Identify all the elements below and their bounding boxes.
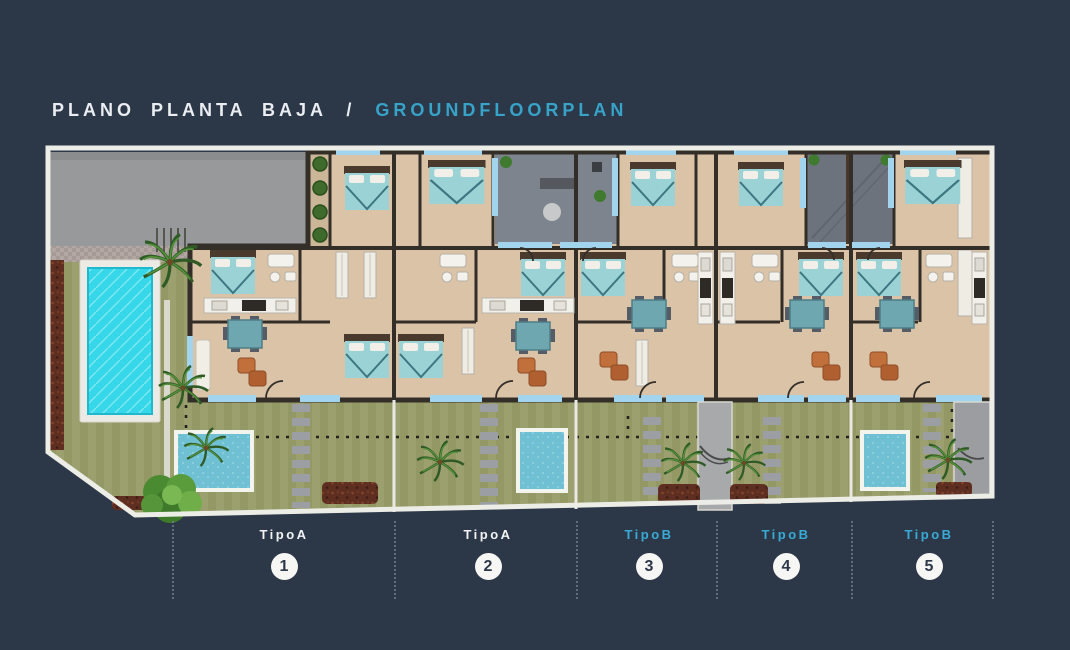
unit-number-badge: 3	[636, 553, 663, 580]
unit-label-2: TipoA 2	[428, 526, 548, 580]
unit-number-badge: 2	[475, 553, 502, 580]
label-separator	[394, 521, 396, 599]
label-separator	[576, 521, 578, 599]
page: PLANO PLANTA BAJA / GROUNDFLOORPLAN	[0, 0, 1070, 650]
unit-type-label: TipoA	[428, 526, 548, 544]
unit-type-label: TipoB	[726, 526, 846, 544]
unit-label-5: TipoB 5	[869, 526, 989, 580]
unit-number-badge: 1	[271, 553, 298, 580]
unit-label-1: TipoA 1	[224, 526, 344, 580]
unit-label-3: TipoB 3	[589, 526, 709, 580]
plunge-pool-2	[518, 430, 566, 491]
entry-courtyard-1	[495, 152, 618, 244]
communal-pool	[80, 260, 160, 422]
label-separator	[716, 521, 718, 599]
unit-type-label: TipoA	[224, 526, 344, 544]
building	[187, 149, 992, 402]
unit-type-label: TipoB	[589, 526, 709, 544]
unit-number-badge: 5	[916, 553, 943, 580]
unit-label-4: TipoB 4	[726, 526, 846, 580]
label-separator	[992, 521, 994, 599]
plunge-pool-3	[862, 432, 908, 489]
label-separator	[851, 521, 853, 599]
unit-number-badge: 4	[773, 553, 800, 580]
central-walkway	[698, 402, 732, 510]
unit1-planter	[310, 152, 330, 246]
unit-type-label: TipoB	[869, 526, 989, 544]
label-separator	[172, 521, 174, 599]
